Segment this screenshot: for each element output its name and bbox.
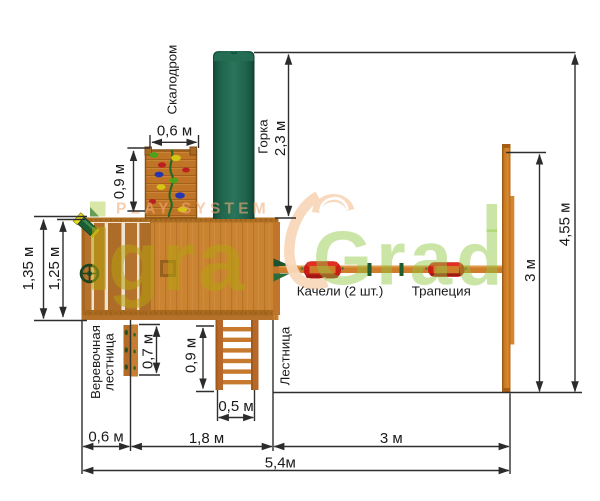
- svg-text:0,7 м: 0,7 м: [139, 334, 156, 369]
- svg-text:1,8 м: 1,8 м: [189, 430, 224, 447]
- svg-text:0,9 м: 0,9 м: [111, 164, 128, 199]
- svg-text:gra: gra: [108, 214, 248, 308]
- svg-text:0,9 м: 0,9 м: [182, 338, 199, 373]
- svg-text:4,55 м: 4,55 м: [557, 203, 574, 247]
- svg-text:1,25 м: 1,25 м: [46, 247, 63, 291]
- svg-text:3 м: 3 м: [522, 259, 539, 282]
- svg-text:Трапеция: Трапеция: [412, 283, 471, 298]
- svg-text:Горка: Горка: [256, 119, 271, 154]
- svg-text:2,3 м: 2,3 м: [272, 121, 289, 156]
- svg-text:0,6 м: 0,6 м: [88, 429, 123, 446]
- svg-text:1,35 м: 1,35 м: [20, 247, 37, 291]
- svg-text:0,6 м: 0,6 м: [157, 123, 192, 140]
- svg-text:Качели (2 шт.): Качели (2 шт.): [297, 283, 384, 298]
- svg-text:3 м: 3 м: [380, 430, 403, 447]
- svg-text:Скалодром: Скалодром: [164, 45, 179, 115]
- svg-text:0,5 м: 0,5 м: [218, 398, 253, 415]
- svg-text:Лестница: Лестница: [278, 326, 293, 385]
- svg-text:5,4м: 5,4м: [265, 455, 296, 472]
- svg-text:лестница: лестница: [102, 333, 117, 391]
